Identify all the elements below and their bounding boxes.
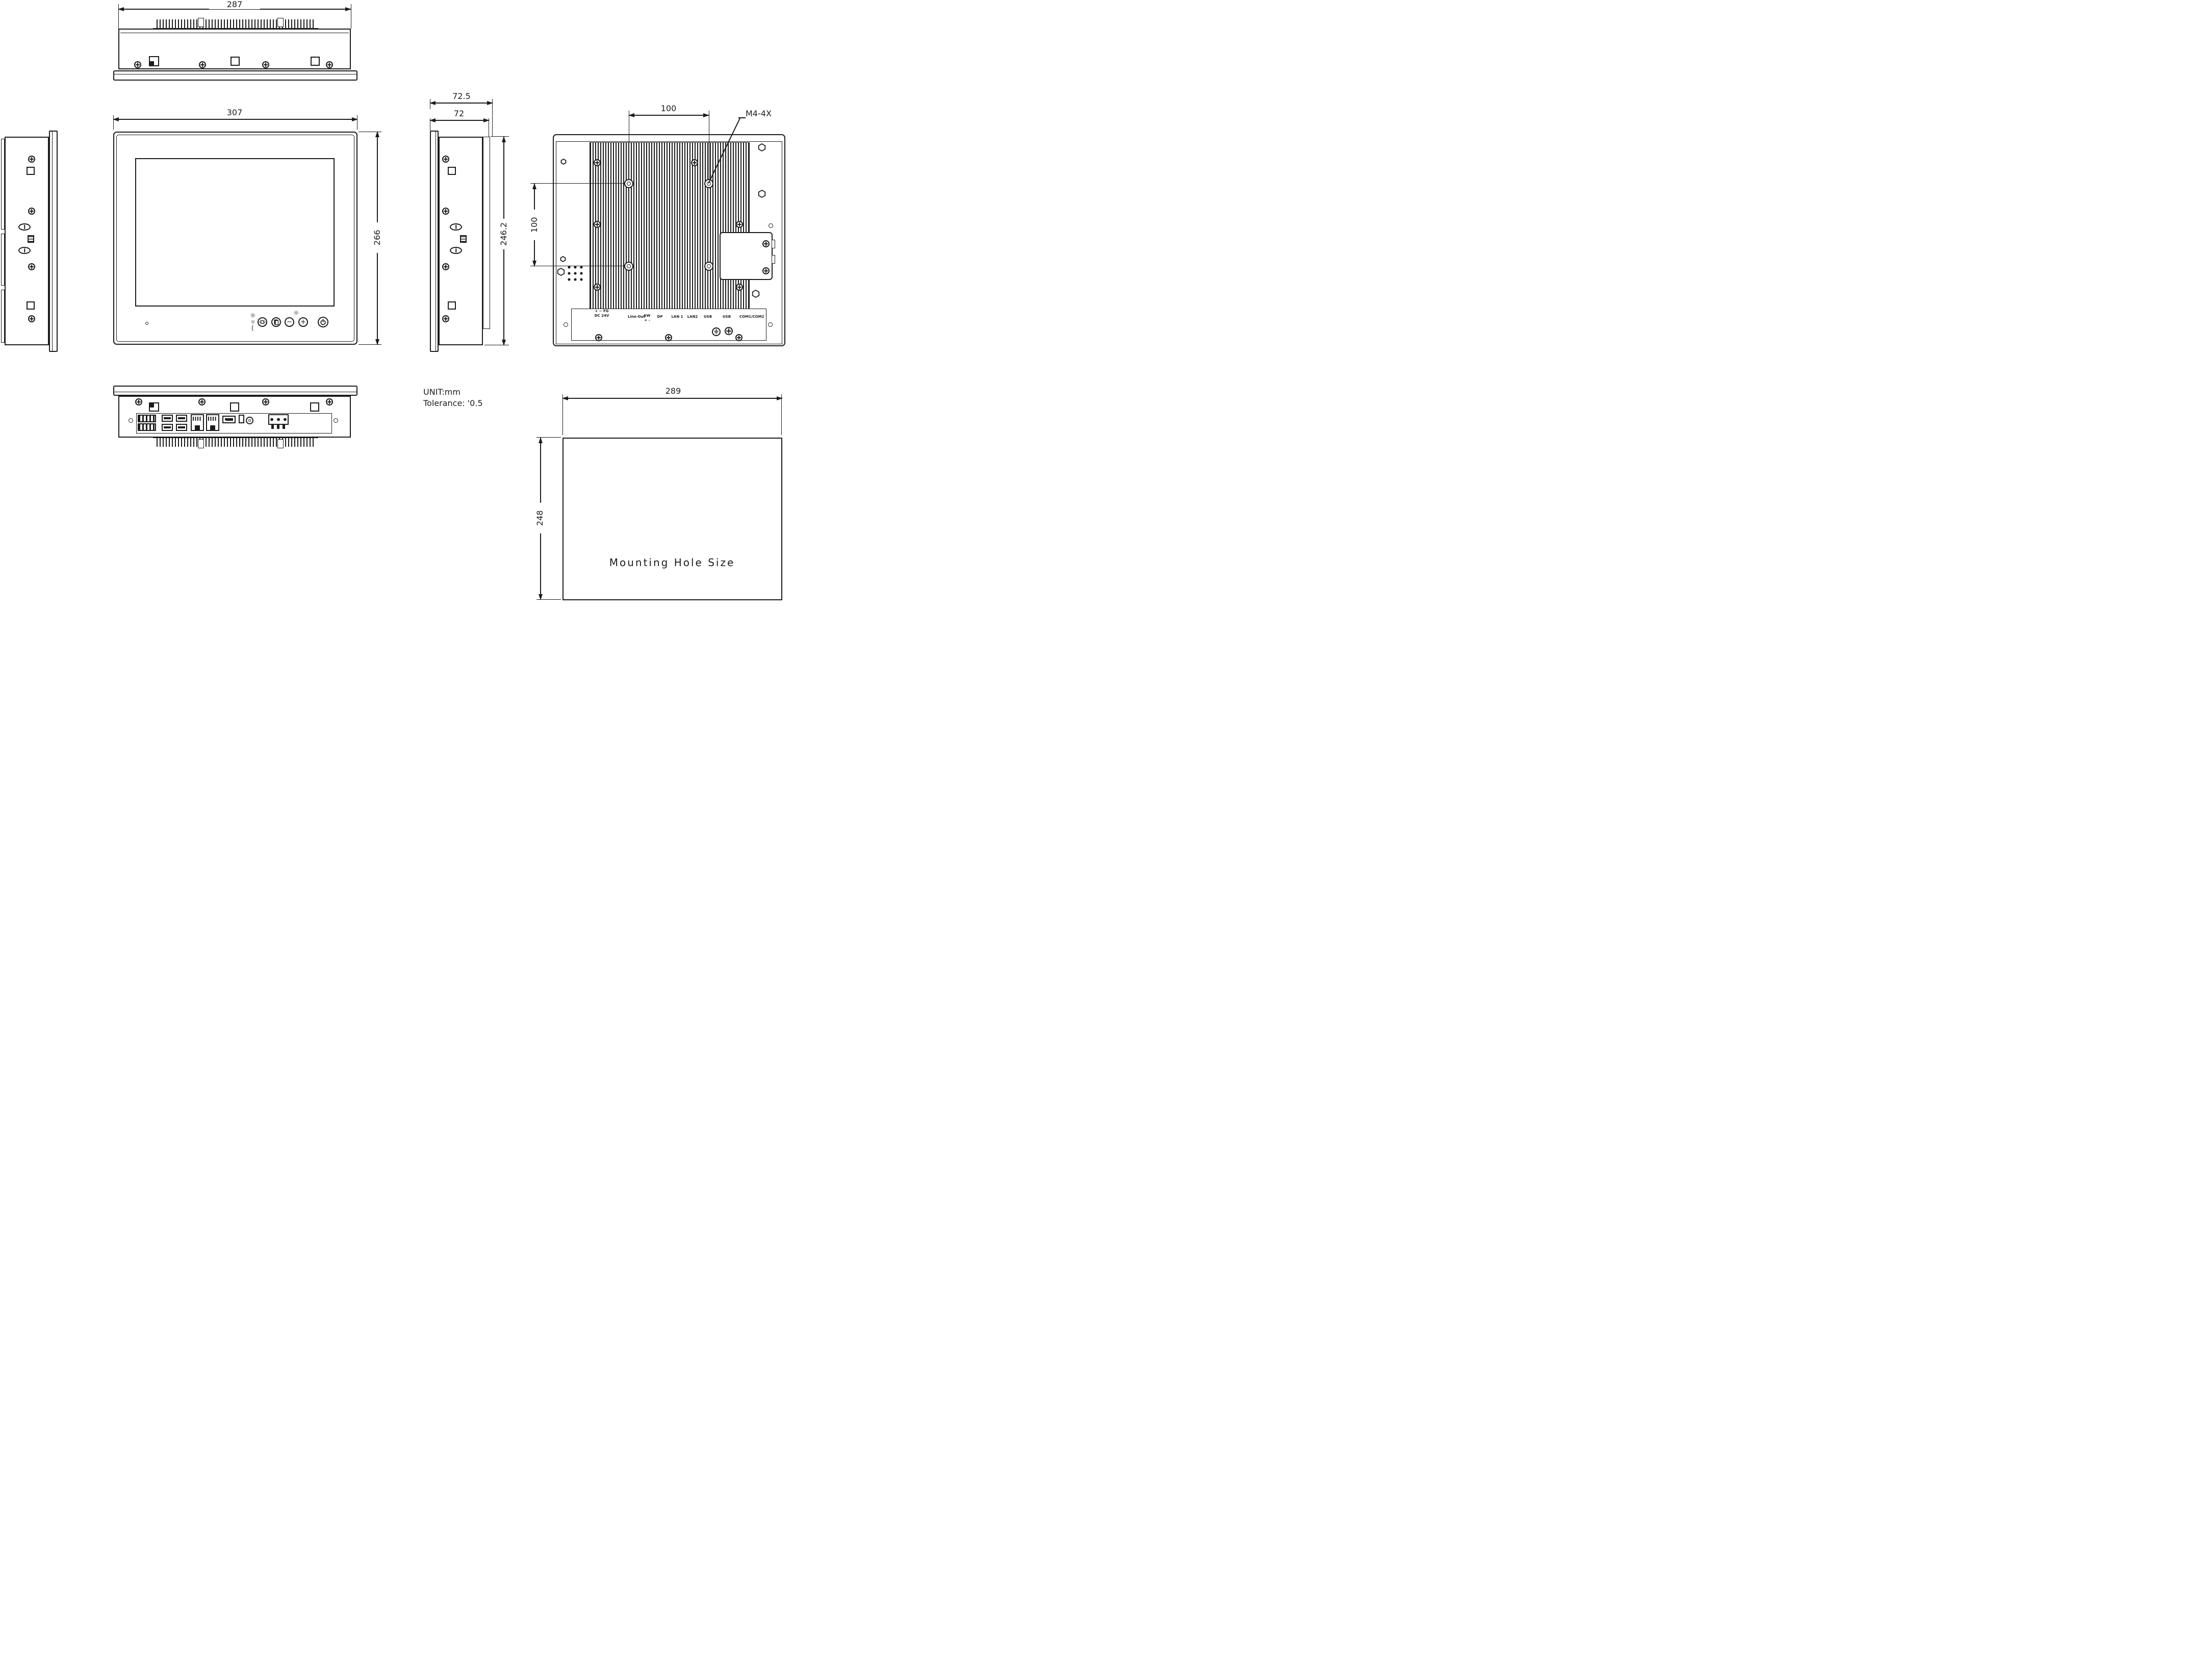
phillips-screw-icon: [736, 221, 743, 228]
terminal-pin: [283, 425, 285, 429]
dim-cutout-height: 248: [535, 503, 545, 533]
square-cutout: [27, 167, 35, 175]
phillips-screw-icon: [134, 61, 141, 68]
dimension-line-vesa-horizontal: [629, 115, 709, 116]
port-label-lan2: LAN2: [686, 315, 699, 319]
brightness-sun-icon: [259, 319, 266, 325]
vent-cutout: [460, 235, 467, 243]
dim-arrow: [539, 594, 543, 600]
dim-arrow: [628, 113, 634, 117]
square-cutout: [448, 301, 456, 310]
phillips-screw-icon: [28, 208, 35, 215]
phillips-screw-icon: [326, 61, 333, 68]
port-label-power-polarity: + − FG: [586, 309, 617, 313]
extension-line: [491, 136, 509, 137]
dim-vesa-horizontal: 100: [653, 104, 684, 113]
side-button: [18, 247, 31, 254]
port-label-com: COM1/COM2: [739, 315, 763, 319]
square-cutout: [310, 402, 319, 412]
sun-icon: ☼: [293, 310, 299, 317]
power-icon: [320, 319, 326, 325]
phillips-screw-icon: [736, 284, 743, 291]
dim-arrow: [502, 136, 506, 142]
dim-arrow: [483, 118, 490, 122]
dim-arrow: [703, 113, 709, 117]
dim-vesa-vertical: 100: [530, 210, 539, 240]
rear-rail: [1, 139, 5, 230]
dim-arrow: [429, 118, 436, 122]
dimension-line-cutout-width: [562, 398, 782, 399]
tolerance-note: Tolerance: '0.5: [423, 399, 483, 408]
rear-rail: [1, 234, 5, 286]
cover-tab: [772, 255, 775, 264]
phillips-screw-icon: [595, 334, 602, 341]
dimension-line-depth-body: [430, 120, 489, 121]
hole: [769, 223, 773, 228]
usb-port: [162, 415, 173, 422]
fin-tab: [277, 18, 284, 27]
dim-front-width: 307: [209, 108, 260, 117]
power-terminal: [268, 414, 289, 425]
lan-port: [206, 414, 219, 431]
dim-depth-total: 72.5: [431, 92, 492, 101]
vesa-mount-hole: [624, 262, 633, 271]
phillips-screw-icon: [262, 61, 269, 68]
mounting-caption: Mounting Hole Size: [596, 557, 749, 568]
com-terminal-block: [138, 423, 156, 431]
phillips-screw-icon: [326, 398, 333, 405]
port-label-sw-polarity: + -: [641, 318, 654, 322]
vesa-thread-callout: M4-4X: [746, 109, 772, 118]
phillips-screw-icon: [594, 284, 601, 291]
extension-line: [781, 394, 782, 435]
usb-port: [176, 415, 187, 422]
dim-arrow: [113, 117, 119, 121]
extension-line: [530, 183, 625, 184]
side-button: [450, 223, 462, 231]
port-label-power: DC 24V: [586, 314, 617, 318]
phillips-screw-icon: [691, 159, 698, 166]
phillips-screw-icon: [665, 334, 672, 341]
unit-note: UNIT:mm: [423, 388, 460, 397]
dim-arrow: [562, 396, 568, 400]
port-label-lan1: LAN 1: [671, 315, 684, 319]
minus-label: −: [287, 319, 292, 325]
cover-tab: [772, 240, 775, 248]
dim-arrow: [777, 396, 783, 400]
plus-label: +: [300, 319, 306, 325]
dimension-line-front-width: [113, 119, 357, 120]
dim-arrow: [502, 340, 506, 346]
technical-drawing-sheet: 287 307 266: [0, 0, 788, 601]
port-label-dp: DP: [655, 315, 665, 319]
inner-edge-line: [120, 33, 349, 33]
fin-tab: [277, 439, 284, 448]
hole: [129, 418, 133, 423]
phillips-screw-icon: [762, 267, 770, 274]
vent-cutout: [28, 235, 34, 243]
usb-port: [162, 424, 173, 431]
phillips-screw-icon: [28, 263, 35, 270]
phillips-screw-icon: [262, 398, 269, 405]
port-label-usb-a: USB: [702, 315, 713, 319]
dim-front-height: 266: [373, 222, 382, 253]
ground-icon: [713, 328, 720, 335]
ground-screw: [712, 327, 721, 336]
plus-button: +: [298, 317, 308, 327]
square-cutout: [230, 402, 239, 412]
displayport-port: [222, 416, 236, 423]
phillips-screw-icon: [442, 263, 449, 270]
dim-arrow: [345, 7, 351, 11]
hole: [334, 418, 338, 423]
connector-detail: [150, 403, 154, 408]
bezel-line: [436, 132, 436, 351]
front-bezel-edge: [113, 70, 357, 81]
phillips-screw-icon: [199, 61, 206, 68]
dimension-line-depth-total: [430, 103, 493, 104]
phillips-screw-icon: [442, 208, 449, 215]
vesa-mount-hole: [704, 262, 713, 271]
mounting-cutout-outline: [562, 438, 782, 600]
vesa-mount-hole: [624, 179, 633, 188]
dim-arrow: [429, 101, 436, 105]
terminal-pin: [277, 425, 279, 429]
power-button: [318, 317, 328, 327]
phillips-screw-icon: [594, 221, 601, 228]
phillips-screw-icon: [594, 159, 601, 166]
extension-line: [629, 111, 629, 180]
side-bezel: [49, 131, 58, 352]
display-icon: [273, 319, 279, 325]
display-select-button: [271, 317, 281, 327]
phillips-screw-icon: [725, 327, 733, 335]
bezel-edge-line: [114, 74, 356, 74]
dim-arrow: [487, 101, 493, 105]
com-terminal-block: [138, 415, 156, 422]
dim-arrow: [352, 117, 358, 121]
night-mode-icon: (: [251, 325, 254, 332]
dim-depth-body: 72: [428, 109, 490, 118]
heatsink-fins-icon: [590, 142, 750, 309]
square-cutout: [448, 167, 456, 175]
dim-arrow: [375, 131, 379, 137]
phillips-screw-icon: [198, 398, 206, 405]
audio-jack: [246, 417, 253, 424]
dim-arrow: [539, 437, 543, 443]
brightness-button: [258, 317, 267, 327]
display-screen: [135, 158, 335, 307]
extension-line: [562, 394, 563, 435]
bezel-edge-line: [114, 392, 356, 392]
extension-line: [709, 111, 709, 180]
dim-cutout-width: 289: [648, 387, 699, 396]
dim-arrow: [532, 183, 536, 189]
phillips-screw-icon: [135, 398, 142, 405]
rear-rail: [1, 290, 5, 343]
power-led: [145, 322, 148, 325]
connector-detail: [150, 61, 154, 65]
hole: [768, 322, 773, 327]
square-cutout: [27, 301, 35, 310]
port-label-sw: SW: [642, 314, 652, 318]
extension-line: [530, 266, 625, 266]
dim-arrow: [532, 261, 536, 267]
speaker-grille-icon: [566, 264, 585, 283]
bezel-line: [52, 132, 53, 351]
side-button: [18, 223, 31, 231]
fin-tab: [198, 439, 204, 448]
dim-top-width: 287: [209, 0, 260, 9]
lan-port: [191, 414, 204, 431]
heatsink-fins-icon: [157, 438, 315, 447]
square-cutout: [311, 57, 320, 66]
phillips-screw-icon: [442, 156, 449, 163]
phillips-screw-icon: [28, 156, 35, 163]
phillips-screw-icon: [28, 315, 35, 322]
switch-connector: [239, 415, 244, 423]
port-label-usb-b: USB: [721, 315, 732, 319]
front-bezel-edge: [113, 386, 357, 396]
heatsink-fins-icon: [157, 19, 315, 28]
side-button: [450, 247, 462, 254]
phillips-screw-icon: [762, 240, 770, 247]
fin-tab: [198, 18, 204, 27]
phillips-screw-icon: [735, 334, 743, 341]
minus-button: −: [285, 317, 294, 327]
usb-port: [176, 424, 187, 431]
side-bezel: [430, 131, 439, 352]
phillips-screw-icon: [442, 315, 449, 322]
rear-rail: [483, 137, 490, 329]
square-cutout: [231, 57, 240, 66]
terminal-pin: [271, 425, 274, 429]
dim-rear-height: 246.2: [499, 219, 508, 249]
hole: [564, 322, 568, 327]
dim-arrow: [375, 339, 379, 345]
dim-arrow: [118, 7, 124, 11]
